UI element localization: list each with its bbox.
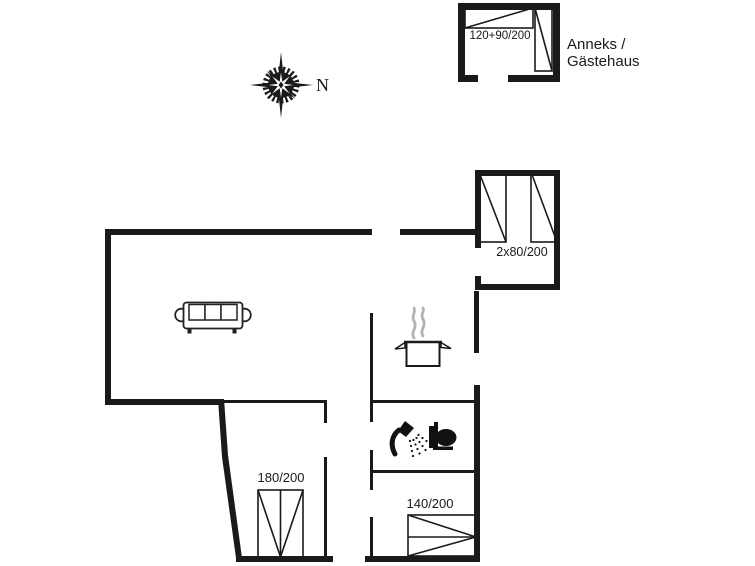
twin-beds-icon: [477, 170, 561, 246]
shower-icon: [389, 419, 431, 461]
double-bedroom-wall-top: [220, 400, 327, 403]
hall-divider-lower: [370, 517, 373, 558]
double-bedroom-wall-right-upper: [324, 403, 327, 423]
kitchen-right-wall: [474, 291, 479, 353]
twin-bedroom-wall-bottom: [475, 284, 560, 290]
annex-wall-bottom-left: [458, 75, 478, 82]
floor-plan: 120+90/200 Anneks / Gästehaus N: [0, 0, 755, 566]
living-room-bottom-wall: [105, 399, 220, 405]
annex-name-line2: Gästehaus: [567, 53, 640, 70]
main-wall-left: [105, 229, 111, 405]
annex-bed-size-label: 120+90/200: [464, 30, 536, 42]
toilet-icon: [426, 420, 464, 456]
compass-rose-icon: [247, 51, 317, 121]
small-double-bed-icon: [406, 513, 478, 559]
double-bedroom-wall-right-lower: [324, 457, 327, 558]
twin-bedroom-wall-left-stub: [475, 276, 481, 284]
double-bed-icon: [256, 488, 308, 560]
bathroom-wall-bottom: [370, 470, 474, 473]
annex-name-line1: Anneks /: [567, 36, 640, 53]
sofa-icon: [173, 300, 253, 336]
twin-bed-size-label: 2x80/200: [486, 245, 558, 259]
cooking-pot-icon: [392, 306, 454, 370]
north-label: N: [316, 75, 329, 96]
main-wall-top-right: [400, 229, 476, 235]
main-wall-top-left: [105, 229, 372, 235]
small-double-bed-size-label: 140/200: [404, 496, 456, 511]
annex-name-label: Anneks / Gästehaus: [567, 36, 640, 70]
bathroom-wall-top: [373, 400, 474, 403]
slanted-wall: [210, 395, 250, 566]
annex-wall-bottom-right: [508, 75, 560, 82]
double-bed-size-label: 180/200: [256, 470, 306, 485]
kitchen-hall-divider-upper: [370, 313, 373, 422]
